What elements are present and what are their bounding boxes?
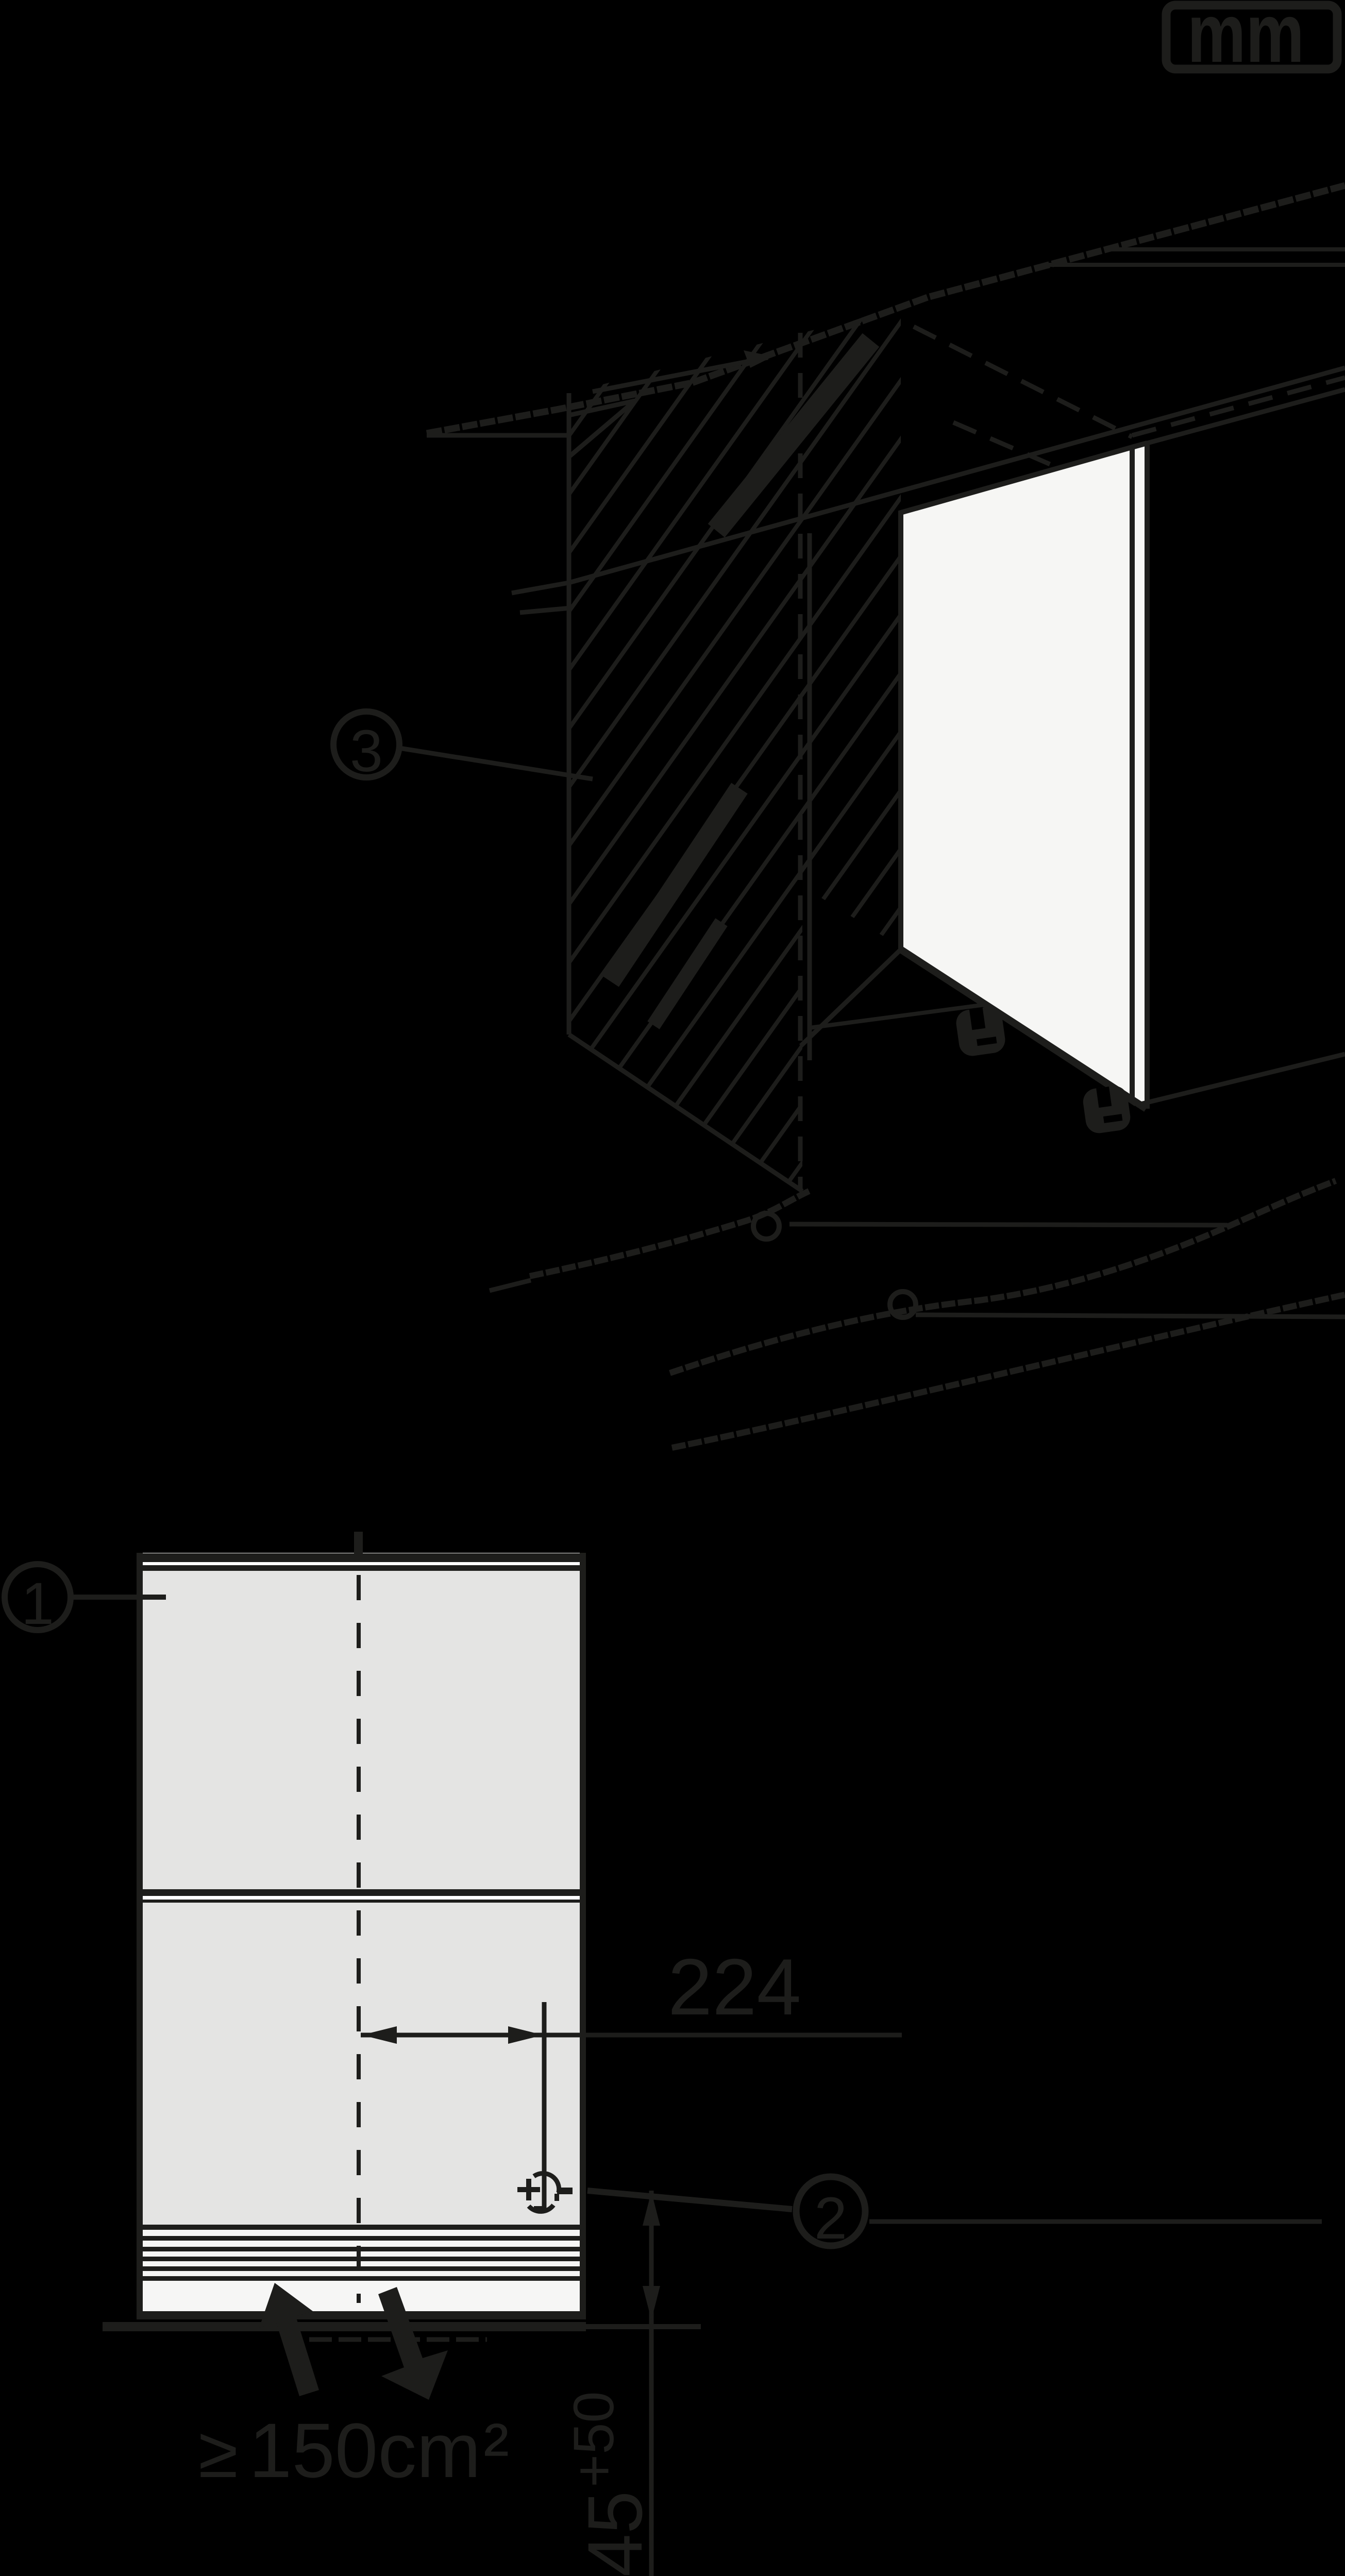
svg-text:1: 1 [21,1571,54,1637]
svg-text:145: 145 [571,2491,658,2576]
svg-text:mm: mm [1187,0,1304,80]
svg-text:2: 2 [814,2185,847,2251]
svg-text:3: 3 [350,718,383,784]
svg-text:≥: ≥ [198,2412,238,2493]
svg-text:²: ² [483,2407,509,2494]
svg-text:224: 224 [668,1942,801,2031]
svg-text:+50: +50 [562,2391,626,2487]
svg-text:150cm: 150cm [249,2407,481,2494]
